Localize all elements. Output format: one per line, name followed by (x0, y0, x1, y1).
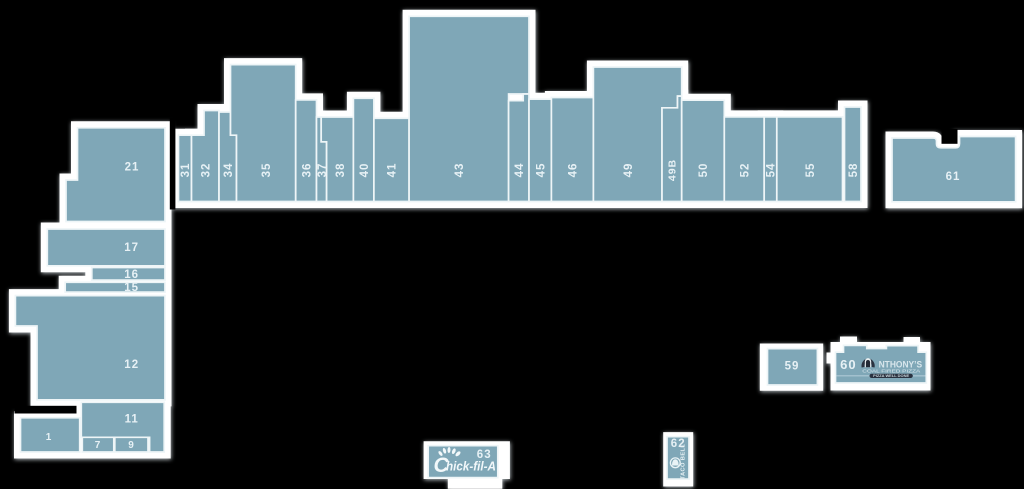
svg-text:49: 49 (623, 163, 635, 178)
svg-text:61: 61 (946, 171, 961, 183)
svg-text:7: 7 (95, 440, 102, 451)
svg-text:43: 43 (454, 163, 466, 178)
svg-text:54: 54 (765, 163, 777, 178)
svg-text:hick-fil-A: hick-fil-A (446, 459, 496, 474)
svg-text:44: 44 (514, 163, 526, 178)
svg-text:PIZZA WELL DONE: PIZZA WELL DONE (873, 374, 910, 378)
svg-text:41: 41 (387, 163, 399, 178)
svg-text:38: 38 (335, 163, 347, 178)
svg-text:49B: 49B (667, 159, 679, 181)
svg-text:17: 17 (124, 242, 139, 254)
svg-text:COAL FIRED PIZZA: COAL FIRED PIZZA (862, 368, 921, 373)
svg-text:21: 21 (125, 162, 140, 174)
svg-text:16: 16 (124, 269, 139, 281)
svg-text:50: 50 (698, 163, 710, 178)
svg-text:37: 37 (317, 163, 329, 178)
svg-text:1: 1 (46, 432, 53, 443)
svg-text:52: 52 (739, 163, 751, 178)
svg-text:9: 9 (128, 440, 135, 451)
svg-text:55: 55 (805, 163, 817, 178)
svg-text:TACO BELL: TACO BELL (680, 444, 686, 480)
svg-text:36: 36 (301, 163, 313, 178)
svg-text:31: 31 (180, 163, 192, 178)
svg-text:45: 45 (535, 163, 547, 178)
svg-text:32: 32 (200, 163, 212, 178)
svg-text:12: 12 (124, 359, 139, 371)
svg-text:60: 60 (840, 357, 856, 372)
svg-text:15: 15 (124, 282, 139, 294)
svg-text:35: 35 (261, 163, 273, 178)
svg-text:58: 58 (848, 163, 860, 178)
svg-text:34: 34 (223, 163, 235, 178)
svg-text:59: 59 (785, 360, 800, 372)
svg-text:40: 40 (359, 163, 371, 178)
svg-text:11: 11 (125, 414, 139, 426)
svg-text:46: 46 (568, 163, 580, 178)
